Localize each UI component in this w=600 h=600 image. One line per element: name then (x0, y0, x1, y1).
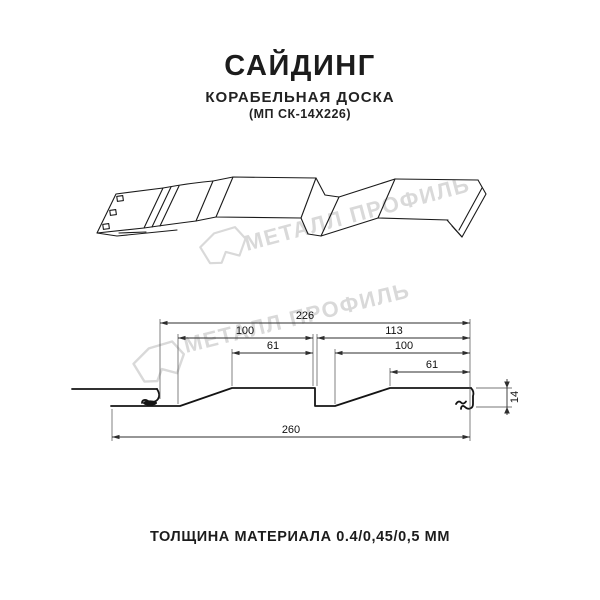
panel1-face (216, 177, 316, 218)
dim-100-right: 100 (395, 340, 413, 352)
watermark-brand-text: МЕТАЛЛ ПРОФИЛЬ (242, 172, 473, 256)
product-drawing-page: САЙДИНГ КОРАБЕЛЬНАЯ ДОСКА (МП СК-14Х226)… (0, 0, 600, 600)
nail-hole-icon (103, 224, 110, 230)
lock-hem-fold (143, 400, 157, 405)
watermark-section: МЕТАЛЛ ПРОФИЛЬ (131, 277, 413, 384)
dim-61-left: 61 (267, 340, 279, 352)
watermark-3d: МЕТАЛЛ ПРОФИЛЬ (198, 172, 473, 266)
thickness-note: ТОЛЩИНА МАТЕРИАЛА 0.4/0,45/0,5 ММ (0, 529, 600, 545)
dim-14: 14 (509, 391, 521, 403)
nail-hole-icon (110, 210, 117, 216)
nail-hole-icon (117, 196, 124, 202)
dim-100-left: 100 (236, 325, 254, 337)
dim-260: 260 (282, 424, 300, 436)
drawing-canvas: МЕТАЛЛ ПРОФИЛЬ (0, 0, 600, 600)
dim-113: 113 (385, 325, 403, 337)
dim-61-right: 61 (426, 359, 438, 371)
dim-226: 226 (296, 310, 314, 322)
dimension-lines (112, 323, 510, 437)
profile-cross-section (72, 388, 473, 409)
hem-break-squiggle (456, 402, 466, 405)
metall-profil-logo-icon (131, 340, 187, 384)
extension-lines (112, 319, 512, 441)
